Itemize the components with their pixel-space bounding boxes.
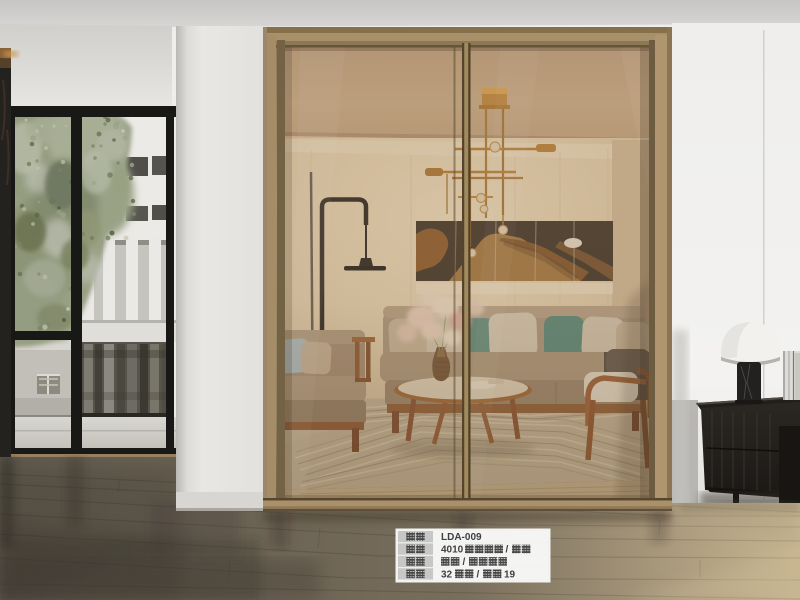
svg-text:LDA-009: LDA-009 — [441, 532, 482, 543]
svg-text:/: / — [463, 557, 466, 568]
svg-text:4010: 4010 — [441, 545, 464, 556]
svg-text:/: / — [506, 545, 509, 556]
svg-text:32: 32 — [441, 569, 453, 580]
svg-text:19: 19 — [504, 569, 516, 580]
svg-text:/: / — [477, 569, 480, 580]
